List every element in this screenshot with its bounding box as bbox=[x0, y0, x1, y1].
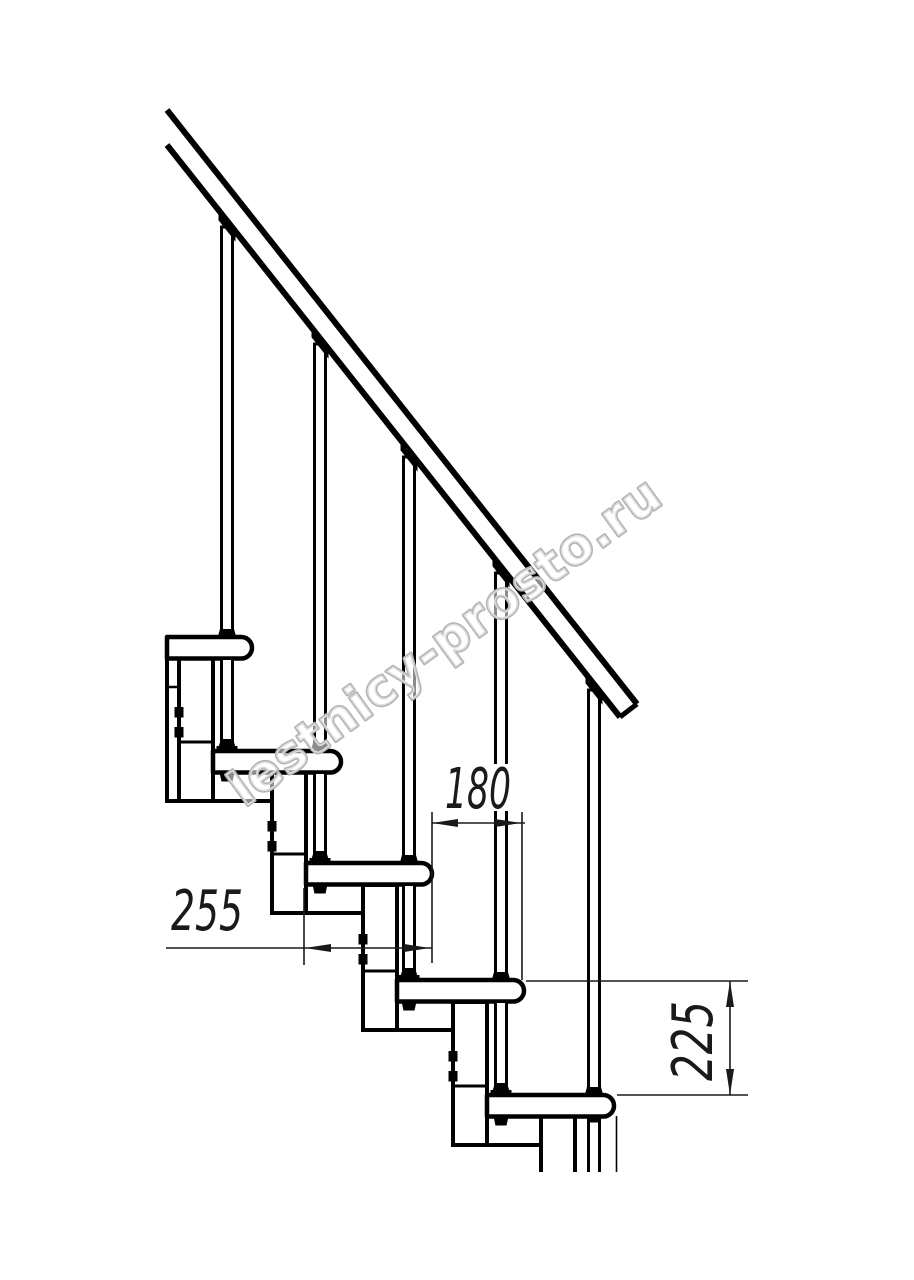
baluster-foot-stem bbox=[312, 851, 329, 859]
baluster-upper-segment bbox=[315, 344, 326, 751]
module-bolt bbox=[359, 934, 368, 945]
baluster-lower-segment bbox=[315, 773, 326, 856]
dimension-tread-depth-label: 255 bbox=[171, 879, 243, 944]
dimension-run-label: 180 bbox=[445, 757, 511, 822]
baluster-foot-flange bbox=[310, 858, 331, 863]
tread-clamp-upper bbox=[585, 1087, 604, 1096]
baluster-foot-stem bbox=[401, 968, 418, 976]
baluster-upper-segment bbox=[589, 690, 600, 1095]
baluster-foot-nut bbox=[313, 885, 328, 894]
module-bolt bbox=[359, 954, 368, 965]
baluster-foot-flange bbox=[491, 1090, 512, 1095]
module-bolt bbox=[449, 1051, 458, 1062]
baluster-lower-segment bbox=[404, 885, 415, 973]
stringer-module-box bbox=[453, 1002, 487, 1145]
module-bolt bbox=[449, 1071, 458, 1082]
tread bbox=[167, 637, 252, 659]
baluster-foot-stem bbox=[219, 739, 236, 747]
baluster-foot-nut bbox=[494, 1117, 509, 1126]
baluster-lower-segment bbox=[222, 659, 233, 744]
baluster-foot-stem bbox=[493, 1083, 510, 1091]
stringer-module-box bbox=[179, 658, 213, 801]
baluster-foot-nut bbox=[402, 1002, 417, 1011]
module-bolt bbox=[268, 841, 277, 852]
module-bolt bbox=[175, 727, 184, 738]
tread-clamp-upper bbox=[400, 855, 419, 864]
baluster-lower-segment bbox=[496, 1002, 507, 1088]
tread-clamp-upper bbox=[492, 972, 511, 981]
stringer-module-box bbox=[363, 885, 397, 1030]
drawing-page: lestnicy-prosto.ru 180 255 225 bbox=[0, 0, 914, 1280]
module-bolt bbox=[268, 821, 277, 832]
tread bbox=[487, 1095, 614, 1117]
module-bolt bbox=[175, 707, 184, 718]
baluster-upper-segment bbox=[222, 227, 233, 637]
tread bbox=[397, 980, 524, 1002]
dimension-riser-label: 225 bbox=[661, 1001, 726, 1081]
tread bbox=[306, 863, 432, 885]
stair-side-view-drawing: lestnicy-prosto.ru 180 255 225 bbox=[0, 0, 914, 1280]
baluster-foot-flange bbox=[217, 746, 238, 751]
tread-clamp-upper bbox=[218, 629, 237, 638]
baluster-foot-flange bbox=[399, 975, 420, 980]
